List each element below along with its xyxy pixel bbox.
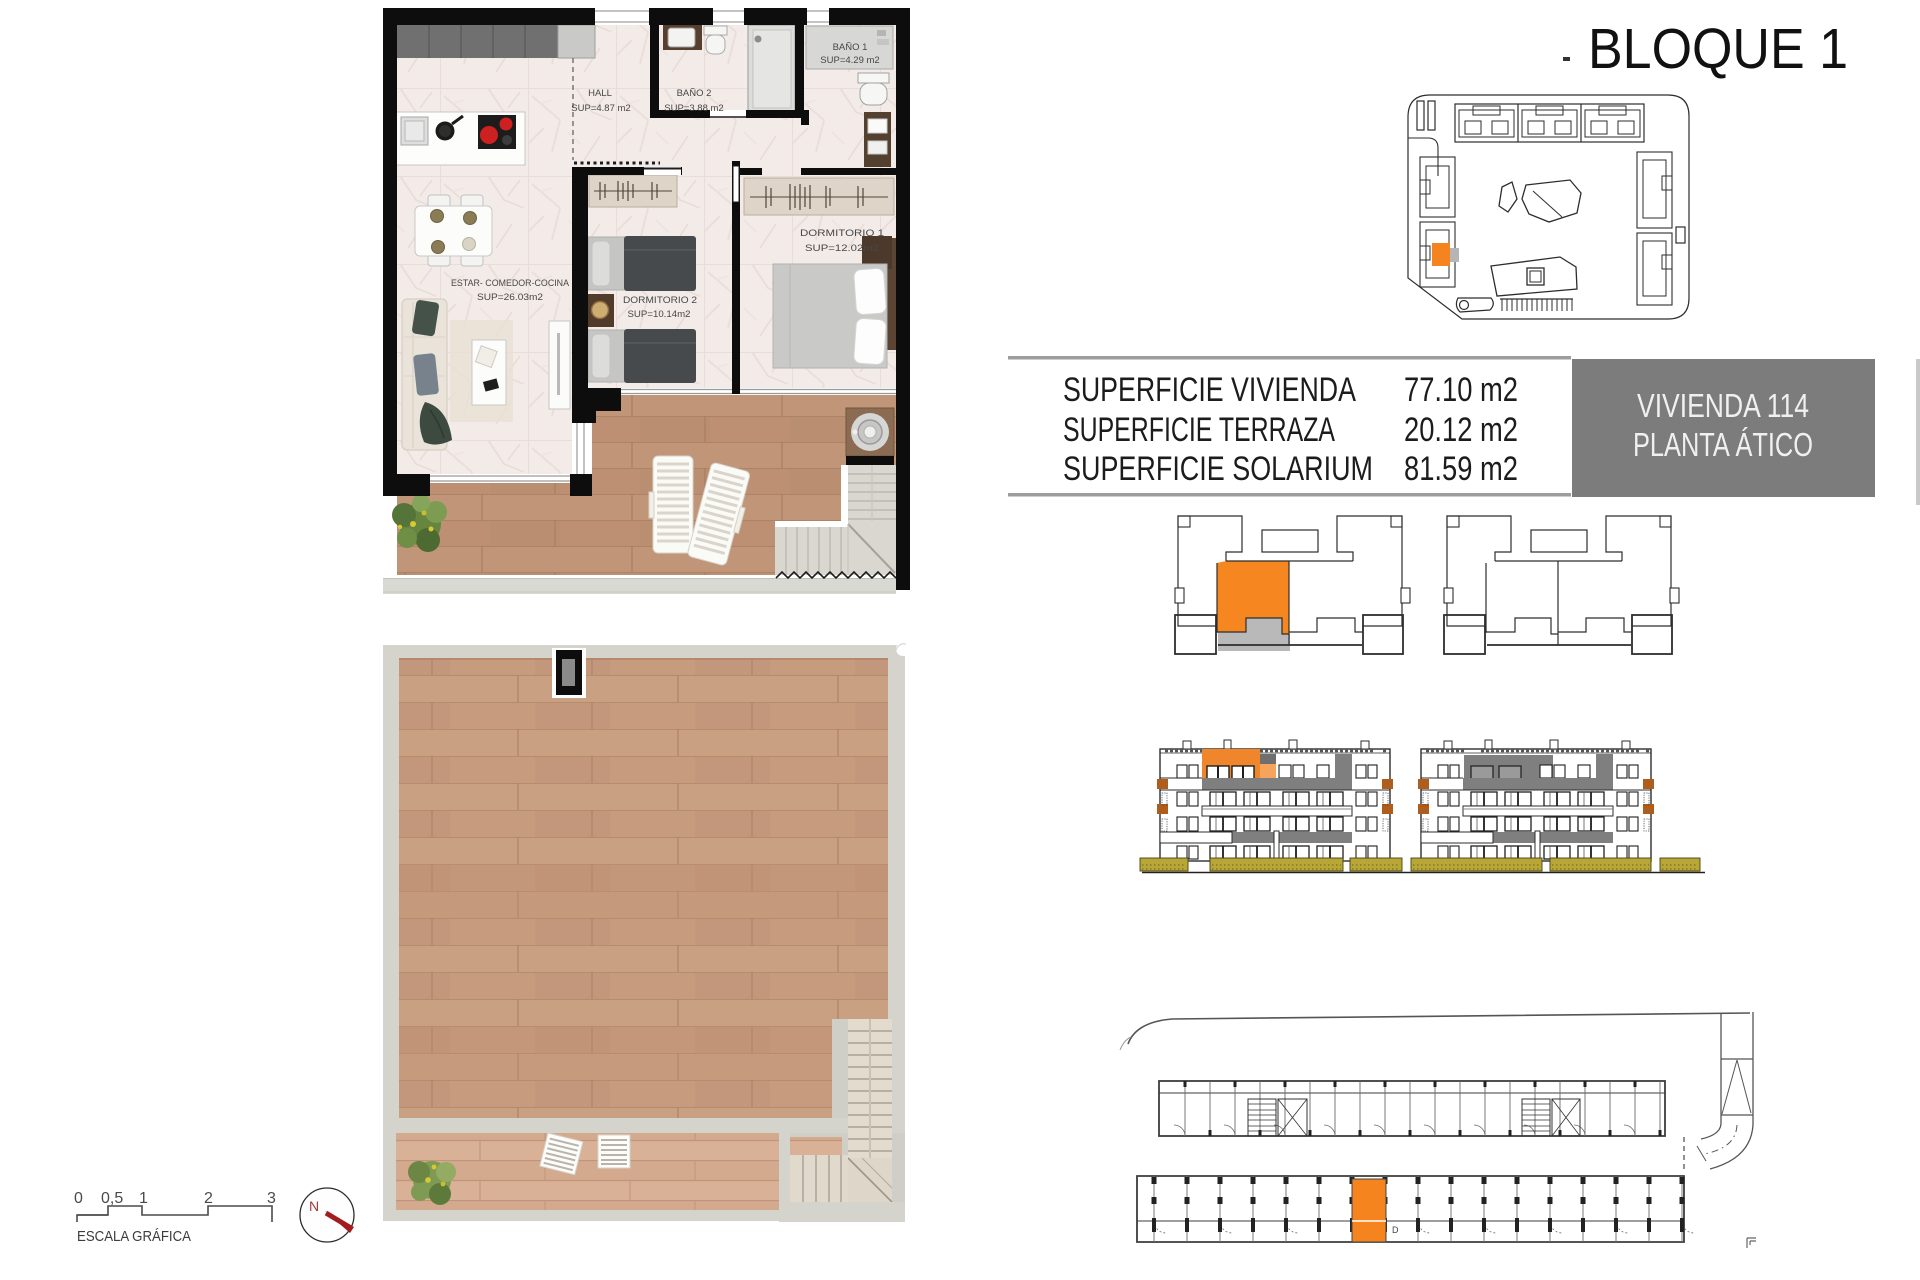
svg-text:BLOQUE 1: BLOQUE 1 bbox=[1588, 17, 1848, 81]
svg-text:DORMITORIO 1: DORMITORIO 1 bbox=[800, 228, 884, 239]
svg-text:20.12 m2: 20.12 m2 bbox=[1404, 411, 1518, 449]
svg-text:SUP=26.03m2: SUP=26.03m2 bbox=[477, 292, 543, 303]
svg-text:77.10 m2: 77.10 m2 bbox=[1404, 371, 1518, 409]
svg-text:SUP=12.02m2: SUP=12.02m2 bbox=[805, 243, 879, 254]
svg-text:SUP=3.88 m2: SUP=3.88 m2 bbox=[664, 103, 723, 114]
svg-text:0,5: 0,5 bbox=[101, 1190, 123, 1207]
svg-text:SUPERFICIE VIVIENDA: SUPERFICIE VIVIENDA bbox=[1063, 371, 1356, 409]
svg-text:BAÑO 2: BAÑO 2 bbox=[677, 88, 712, 99]
svg-text:SUPERFICIE TERRAZA: SUPERFICIE TERRAZA bbox=[1063, 411, 1335, 449]
svg-text:SUP=4.29 m2: SUP=4.29 m2 bbox=[820, 55, 879, 66]
svg-text:SUPERFICIE SOLARIUM: SUPERFICIE SOLARIUM bbox=[1063, 450, 1373, 488]
svg-text:VIVIENDA 114: VIVIENDA 114 bbox=[1637, 387, 1809, 424]
svg-text:DORMITORIO 2: DORMITORIO 2 bbox=[623, 295, 697, 306]
svg-text:PLANTA ÁTICO: PLANTA ÁTICO bbox=[1633, 426, 1813, 463]
svg-text:BAÑO 1: BAÑO 1 bbox=[833, 42, 868, 53]
svg-text:3: 3 bbox=[267, 1190, 276, 1207]
svg-text:HALL: HALL bbox=[588, 88, 612, 99]
svg-text:ESTAR- COMEDOR-COCINA: ESTAR- COMEDOR-COCINA bbox=[451, 278, 570, 289]
svg-text:1: 1 bbox=[139, 1190, 148, 1207]
svg-text:SUP=4.87 m2: SUP=4.87 m2 bbox=[571, 103, 630, 114]
svg-text:ESCALA GRÁFICA: ESCALA GRÁFICA bbox=[77, 1228, 191, 1245]
svg-text:81.59 m2: 81.59 m2 bbox=[1404, 450, 1518, 488]
svg-text:0: 0 bbox=[74, 1190, 83, 1207]
svg-text:2: 2 bbox=[204, 1190, 213, 1207]
svg-text:D: D bbox=[1392, 1225, 1399, 1235]
svg-text:N: N bbox=[309, 1198, 319, 1214]
svg-text:SUP=10.14m2: SUP=10.14m2 bbox=[628, 309, 691, 320]
